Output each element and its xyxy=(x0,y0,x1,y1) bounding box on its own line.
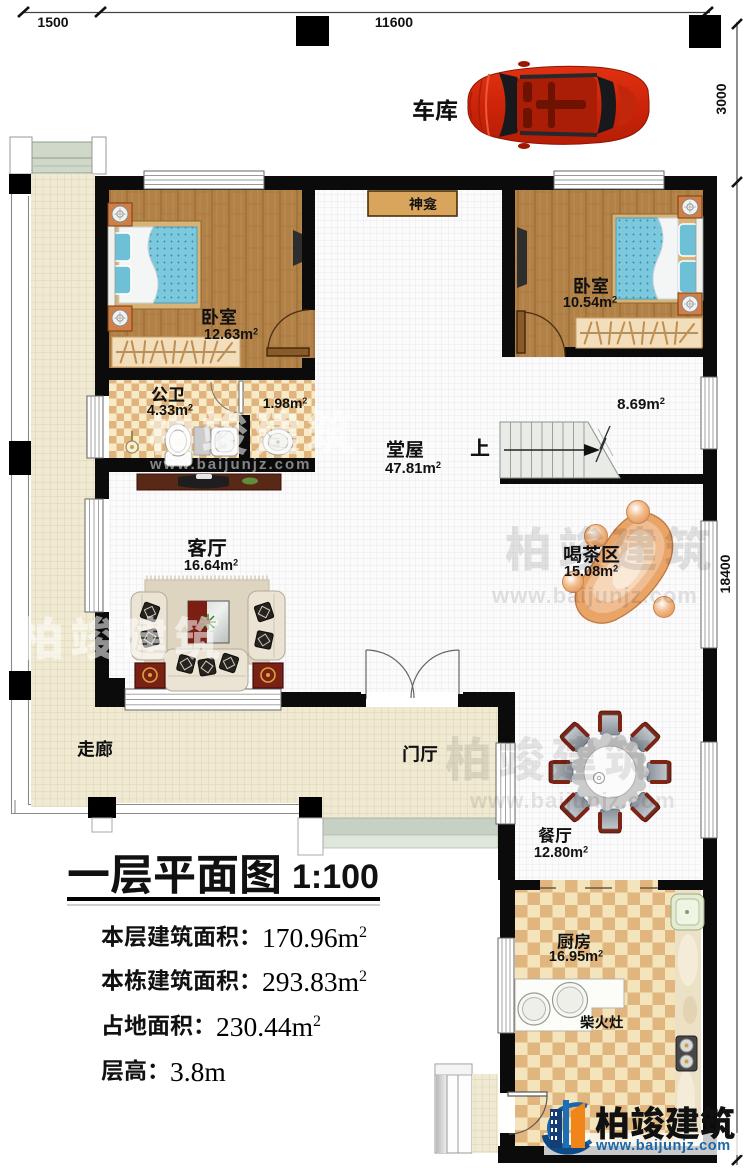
svg-text:16.64m2: 16.64m2 xyxy=(184,557,238,574)
svg-text:170.96m: 170.96m xyxy=(262,922,359,953)
svg-text:1.98m2: 1.98m2 xyxy=(263,395,308,411)
svg-text:www.baijunjz.com: www.baijunjz.com xyxy=(149,456,311,473)
svg-text:www.baijunjz.com: www.baijunjz.com xyxy=(491,583,698,608)
svg-text:4.33m2: 4.33m2 xyxy=(147,402,193,419)
svg-text:10.54m2: 10.54m2 xyxy=(563,294,617,311)
svg-text:16.95m2: 16.95m2 xyxy=(549,948,603,965)
svg-text:2: 2 xyxy=(359,924,367,941)
svg-text:293.83m: 293.83m xyxy=(262,966,359,997)
svg-text:1500: 1500 xyxy=(37,14,68,30)
svg-text:3.8m: 3.8m xyxy=(170,1056,226,1087)
svg-text:1:100: 1:100 xyxy=(292,858,379,896)
svg-text:18400: 18400 xyxy=(717,554,733,593)
svg-text:12.80m2: 12.80m2 xyxy=(534,844,588,861)
svg-text:www.baijunjz.com: www.baijunjz.com xyxy=(469,788,676,813)
svg-text:www.baijunjz.com: www.baijunjz.com xyxy=(595,1138,731,1154)
svg-text:2: 2 xyxy=(359,968,367,985)
svg-text:230.44m: 230.44m xyxy=(216,1011,313,1042)
svg-text:47.81m2: 47.81m2 xyxy=(385,460,441,477)
svg-text:3000: 3000 xyxy=(713,83,729,114)
svg-text:12.63m2: 12.63m2 xyxy=(204,326,258,343)
svg-text:11600: 11600 xyxy=(375,14,413,30)
svg-text:2: 2 xyxy=(313,1013,321,1030)
svg-text:8.69m2: 8.69m2 xyxy=(617,396,665,413)
svg-text:15.08m2: 15.08m2 xyxy=(564,563,618,580)
